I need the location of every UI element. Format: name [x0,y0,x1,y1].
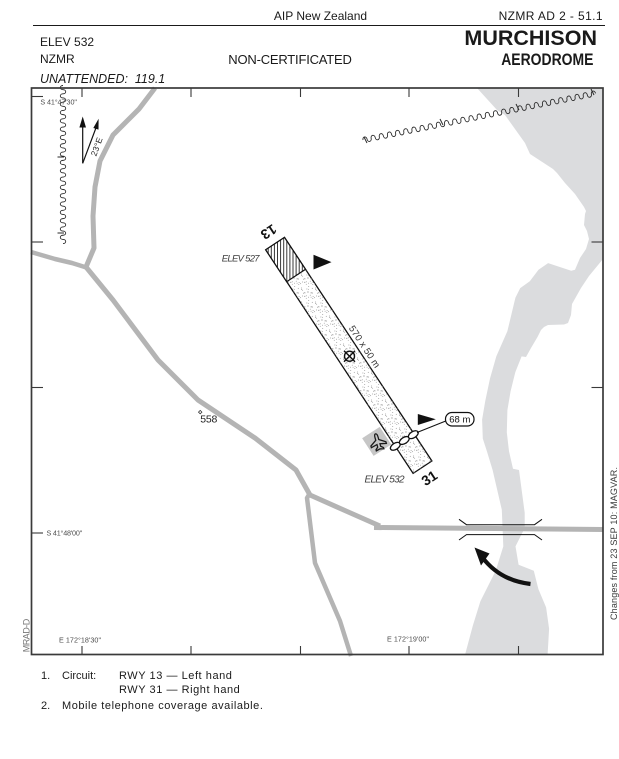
svg-text:E 172°19'00": E 172°19'00" [387,635,429,644]
svg-text:MRAD-D: MRAD-D [21,618,31,652]
svg-text:31: 31 [418,467,440,489]
svg-text:13: 13 [258,221,280,243]
svg-text:S 41°48'00": S 41°48'00" [47,529,83,538]
svg-text:S 41°47'30": S 41°47'30" [40,98,77,107]
svg-text:Changes from 23 SEP 10: MAGVAR: Changes from 23 SEP 10: MAGVAR. [609,467,619,620]
svg-text:ELEV 532: ELEV 532 [365,474,405,485]
svg-text:558: 558 [200,414,217,426]
svg-text:E 172°18'30": E 172°18'30" [59,635,101,644]
svg-text:68 m: 68 m [449,415,470,426]
svg-text:ELEV 527: ELEV 527 [222,254,261,265]
